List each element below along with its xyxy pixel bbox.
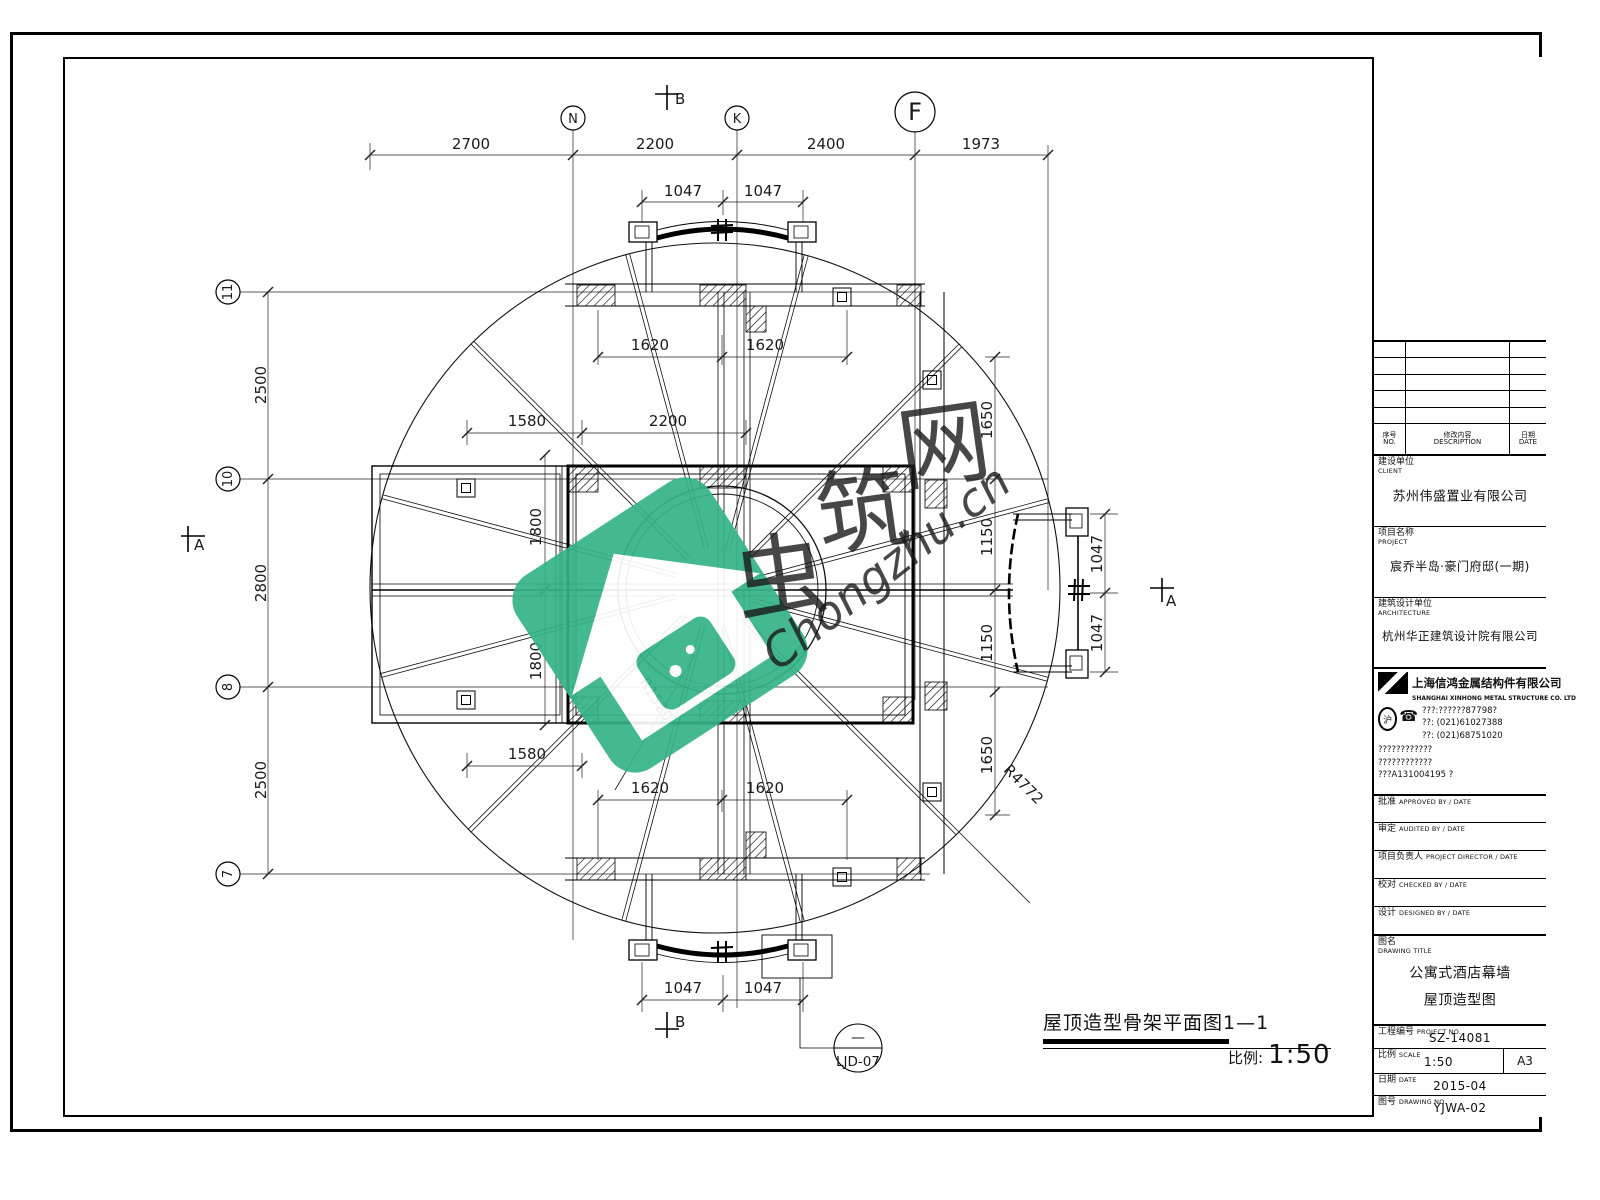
- project-value: 宸乔半岛·豪门府邸(一期): [1374, 557, 1546, 574]
- fabricator-tel0: ???:??????87798?: [1422, 705, 1503, 717]
- dim-topinner-1047a: 1047: [664, 182, 702, 200]
- drawing-sheet: N K F 11 10 8 7: [0, 0, 1600, 1200]
- dim-1620a: 1620: [631, 336, 669, 354]
- grid-label-7: 7: [221, 870, 236, 878]
- plan-title-text: 屋顶造型骨架平面图1—1: [1043, 1008, 1343, 1035]
- drawing-title-line2: 屋顶造型图: [1374, 987, 1546, 1014]
- detail-label: LJD-07: [836, 1054, 880, 1070]
- fabricator-cert: ???A131004195 ?: [1378, 769, 1542, 782]
- dim-left-2800: 2800: [252, 564, 270, 602]
- section-b-top: B: [675, 90, 685, 108]
- dim-2200mid: 2200: [649, 412, 687, 430]
- drawing-no-value: YJWA-02: [1374, 1101, 1546, 1115]
- architecture-value: 杭州华正建筑设计院有限公司: [1374, 628, 1546, 644]
- project-director-row: 项目负责人PROJECT DIRECTOR / DATE: [1374, 850, 1546, 878]
- drawing-title-line1: 公寓式酒店幕墙: [1374, 960, 1546, 987]
- project-section: 项目名称PROJECT 宸乔半岛·豪门府邸(一期): [1374, 526, 1546, 597]
- radius-outer-label: R4772: [1000, 761, 1047, 808]
- plan-scale-value: 1:50: [1268, 1040, 1330, 1070]
- dim-bot-1047b: 1047: [744, 979, 782, 997]
- grid-label-k: K: [733, 112, 742, 127]
- scale-row: 比例 SCALE 1:50 A3: [1374, 1048, 1546, 1073]
- dim-r1047b: 1047: [1088, 614, 1106, 652]
- grid-label-11: 11: [221, 284, 236, 301]
- fabricator-fax: ??: (021)68751020: [1422, 730, 1503, 742]
- dim-right-1650b: 1650: [978, 736, 996, 774]
- fabricator-tel: ??: (021)61027388: [1422, 717, 1503, 729]
- date-row: 日期 DATE 2015-04: [1374, 1073, 1546, 1095]
- dim-left-2500b: 2500: [252, 761, 270, 799]
- dim-top-1973: 1973: [962, 135, 1000, 153]
- approved-row: 批准APPROVED BY / DATE: [1374, 794, 1546, 822]
- client-value: 苏州伟盛置业有限公司: [1374, 485, 1546, 504]
- top-canopy: [629, 219, 816, 292]
- detail-callout-text: — LJD-07: [836, 1030, 880, 1070]
- dim-top-2700: 2700: [452, 135, 490, 153]
- fabricator-name-cn: 上海信鸿金属结构件有限公司: [1412, 675, 1562, 691]
- dim-right-1150b: 1150: [978, 624, 996, 662]
- dim-1620c: 1620: [631, 779, 669, 797]
- dim-topinner-1047b: 1047: [744, 182, 782, 200]
- fabricator-logo: [1378, 672, 1408, 694]
- dim-1800a: 1800: [527, 508, 545, 546]
- fabricator-addr2: ????????????: [1378, 757, 1542, 770]
- title-block-empty: [1374, 57, 1546, 340]
- drawing-title-section: 图名DRAWING TITLE 公寓式酒店幕墙 屋顶造型图: [1374, 934, 1546, 1024]
- dim-1580low: 1580: [508, 745, 546, 763]
- plan-title-underline: [1043, 1039, 1229, 1044]
- dim-left-2500a: 2500: [252, 366, 270, 404]
- sheet-size: A3: [1503, 1049, 1546, 1073]
- dim-1580: 1580: [508, 412, 546, 430]
- fabricator-name-en: SHANGHAI XINHONG METAL STRUCTURE CO. LTD: [1412, 695, 1542, 702]
- title-block: 序号NO. 修改内容DESCRIPTION 日期DATE 建设单位CLIENT …: [1372, 57, 1546, 1117]
- architecture-section: 建筑设计单位ARCHITECTURE 杭州华正建筑设计院有限公司: [1374, 597, 1546, 667]
- client-section: 建设单位CLIENT 苏州伟盛置业有限公司: [1374, 454, 1546, 526]
- dim-r1047a: 1047: [1088, 535, 1106, 573]
- phone-icon: ☎: [1399, 707, 1418, 725]
- dim-top-2400: 2400: [807, 135, 845, 153]
- fabricator-addr1: ????????????: [1378, 744, 1542, 757]
- project-no-row: 工程编号 PROJECT NO. SZ-14081: [1374, 1024, 1546, 1048]
- section-a-left: A: [194, 536, 205, 554]
- plan-scale-label: 比例:: [1228, 1049, 1263, 1067]
- grid-label-8: 8: [221, 683, 236, 691]
- scale-value: 1:50: [1374, 1055, 1503, 1069]
- checked-row: 校对CHECKED BY / DATE: [1374, 878, 1546, 906]
- plan-canvas: N K F 11 10 8 7: [0, 0, 1600, 1200]
- grid-label-f: F: [908, 98, 922, 126]
- section-b-bottom: B: [675, 1013, 685, 1031]
- dim-top-2200: 2200: [636, 135, 674, 153]
- date-value: 2015-04: [1374, 1079, 1546, 1093]
- dim-1620d: 1620: [746, 779, 784, 797]
- drawing-no-row: 图号 DRAWING NO. YJWA-02: [1374, 1095, 1546, 1117]
- fabricator-section: 上海信鸿金属结构件有限公司 SHANGHAI XINHONG METAL STR…: [1374, 667, 1546, 794]
- revision-table: 序号NO. 修改内容DESCRIPTION 日期DATE: [1374, 340, 1546, 454]
- dim-bot-1047a: 1047: [664, 979, 702, 997]
- plan-scale: 比例: 1:50: [1228, 1040, 1331, 1070]
- bottom-canopy: [629, 874, 816, 963]
- section-a-right: A: [1166, 592, 1177, 610]
- dim-1620b: 1620: [746, 336, 784, 354]
- seal-icon: 沪: [1378, 707, 1397, 731]
- project-no-value: SZ-14081: [1374, 1031, 1546, 1045]
- audited-row: 审定AUDITED BY / DATE: [1374, 822, 1546, 850]
- detail-number-dash: —: [851, 1030, 865, 1046]
- grid-label-n: N: [568, 112, 578, 127]
- designed-row: 设计DESIGNED BY / DATE: [1374, 906, 1546, 934]
- grid-label-10: 10: [221, 471, 236, 488]
- right-canopy: [1009, 508, 1090, 678]
